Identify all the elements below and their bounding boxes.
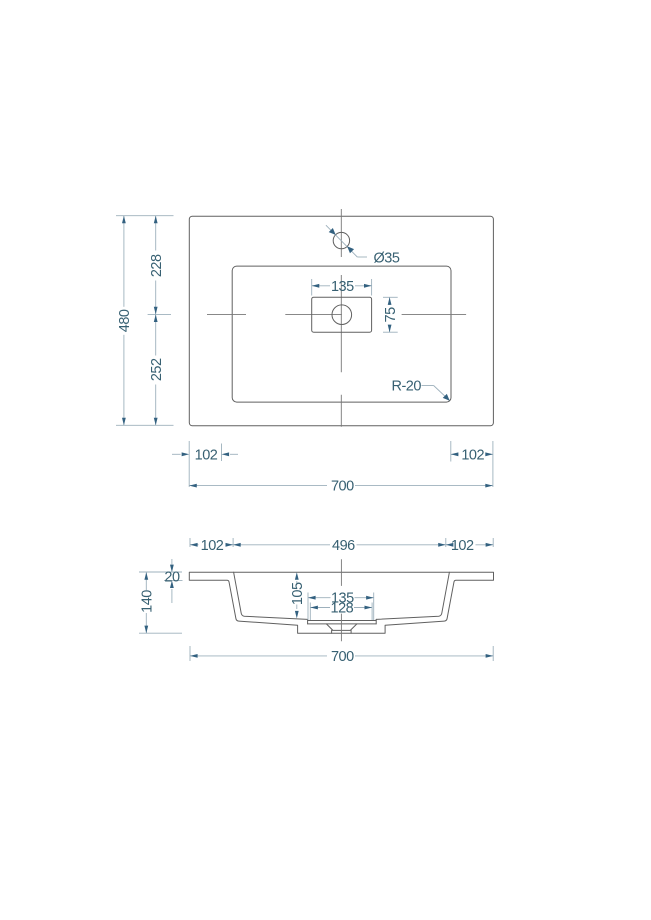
svg-text:75: 75 bbox=[383, 307, 399, 323]
svg-text:102: 102 bbox=[201, 538, 224, 554]
svg-text:102: 102 bbox=[195, 447, 218, 463]
svg-text:102: 102 bbox=[451, 538, 474, 554]
svg-text:700: 700 bbox=[331, 479, 354, 495]
svg-text:135: 135 bbox=[331, 279, 354, 295]
svg-text:228: 228 bbox=[149, 254, 165, 277]
svg-text:496: 496 bbox=[332, 538, 355, 554]
svg-text:Ø35: Ø35 bbox=[374, 250, 400, 266]
svg-text:102: 102 bbox=[461, 447, 484, 463]
svg-text:140: 140 bbox=[140, 590, 156, 613]
svg-text:20: 20 bbox=[164, 569, 180, 585]
svg-text:252: 252 bbox=[149, 358, 165, 381]
svg-text:700: 700 bbox=[331, 649, 354, 665]
svg-text:128: 128 bbox=[331, 601, 354, 617]
svg-text:105: 105 bbox=[290, 582, 306, 605]
svg-text:480: 480 bbox=[117, 309, 133, 332]
svg-text:R-20: R-20 bbox=[392, 379, 422, 395]
